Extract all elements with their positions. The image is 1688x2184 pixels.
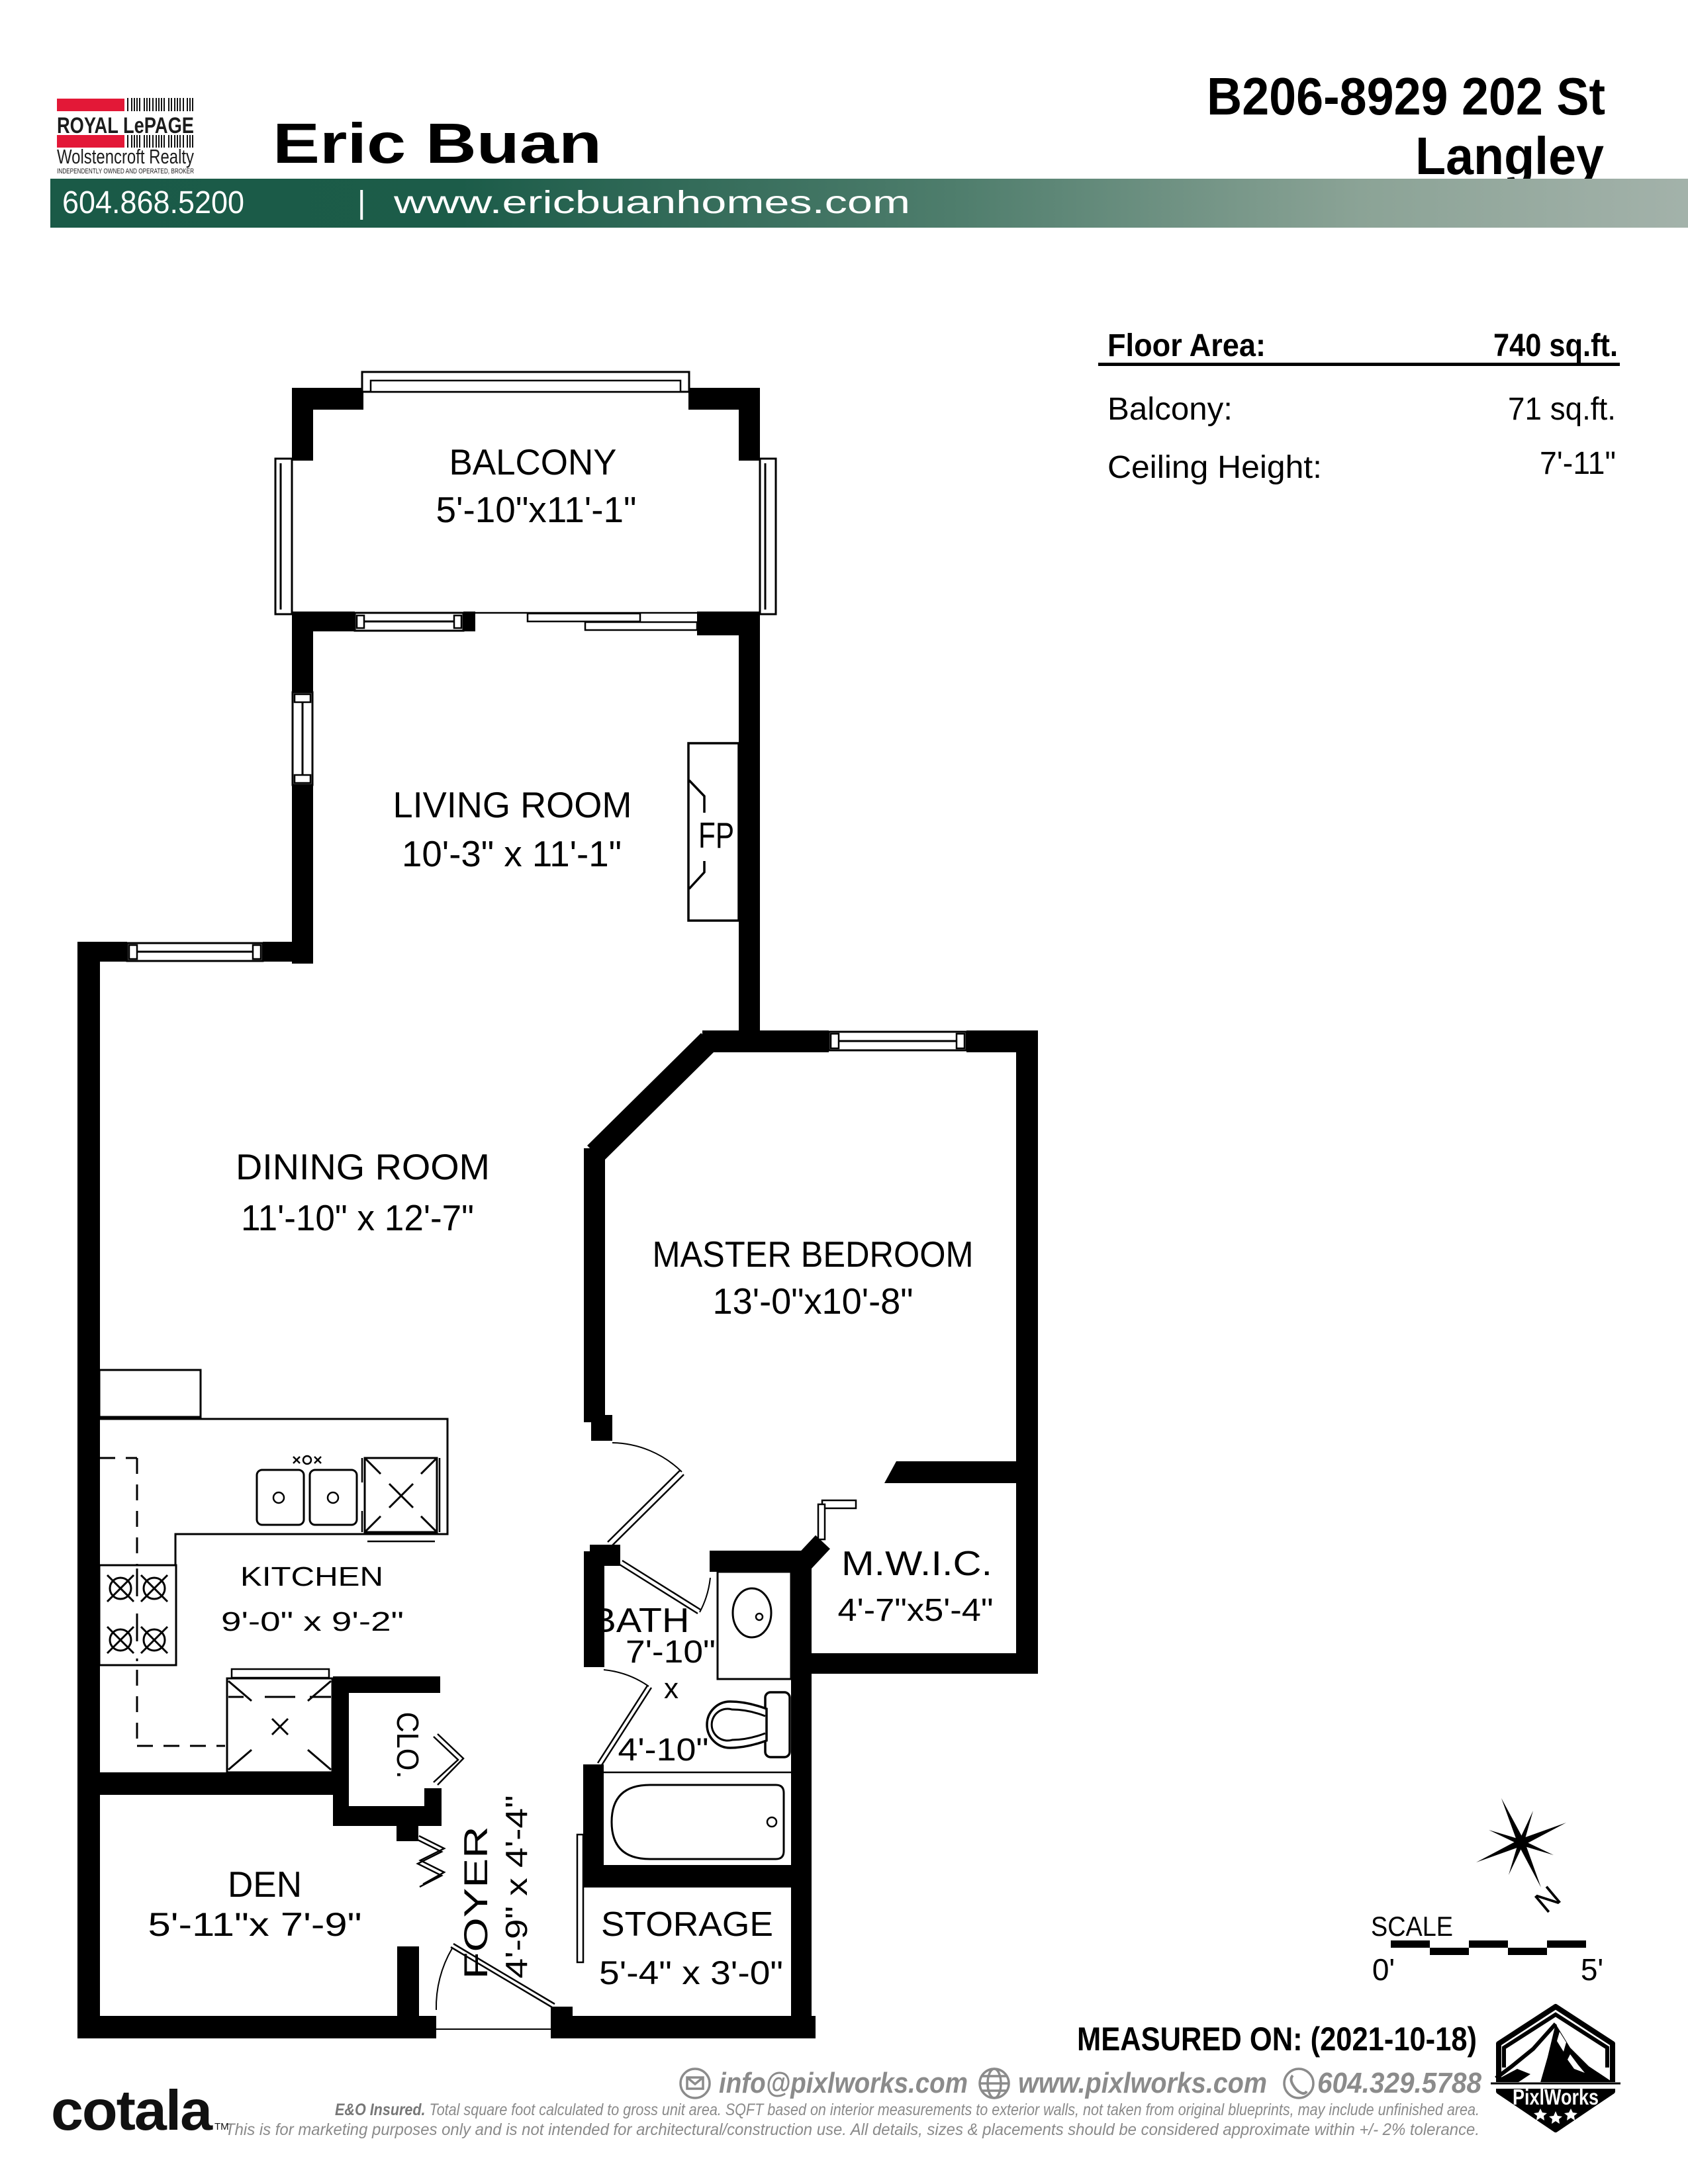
svg-text:FP: FP xyxy=(698,815,734,856)
svg-text:740 sq.ft.: 740 sq.ft. xyxy=(1493,328,1618,363)
svg-text:11'-10" x 12'-7": 11'-10" x 12'-7" xyxy=(241,1197,474,1238)
svg-text:SCALE: SCALE xyxy=(1371,1911,1453,1942)
svg-text:4'-10": 4'-10" xyxy=(618,1733,709,1768)
svg-text:5': 5' xyxy=(1581,1952,1603,1987)
svg-text:PixlWorks: PixlWorks xyxy=(1513,2085,1599,2109)
svg-text:CLO.: CLO. xyxy=(391,1712,425,1779)
svg-text:9'-0" x 9'-2": 9'-0" x 9'-2" xyxy=(221,1606,404,1637)
svg-text:M.W.I.C.: M.W.I.C. xyxy=(841,1545,992,1583)
svg-text:STORAGE: STORAGE xyxy=(601,1905,773,1944)
svg-text:x: x xyxy=(664,1672,679,1705)
svg-text:DINING ROOM: DINING ROOM xyxy=(236,1146,490,1187)
svg-text:4'-7"x5'-4": 4'-7"x5'-4" xyxy=(838,1593,994,1628)
svg-text:MEASURED ON: (2021-10-18): MEASURED ON: (2021-10-18) xyxy=(1077,2021,1477,2058)
svg-text:ROYAL LePAGE: ROYAL LePAGE xyxy=(57,113,194,138)
svg-text:This is for marketing purposes: This is for marketing purposes only and … xyxy=(225,2120,1479,2139)
svg-text:71 sq.ft.: 71 sq.ft. xyxy=(1508,392,1616,427)
svg-text:10'-3" x 11'-1": 10'-3" x 11'-1" xyxy=(402,833,622,874)
svg-text:BALCONY: BALCONY xyxy=(449,441,617,482)
svg-text:TM: TM xyxy=(214,2121,229,2132)
svg-text:0': 0' xyxy=(1372,1952,1395,1987)
svg-text:www.pixlworks.com: www.pixlworks.com xyxy=(1018,2067,1267,2099)
svg-text:cotala: cotala xyxy=(51,2079,213,2142)
svg-text:www.ericbuanhomes.com: www.ericbuanhomes.com xyxy=(393,185,910,220)
svg-text:FOYER: FOYER xyxy=(457,1827,494,1979)
svg-text:LIVING ROOM: LIVING ROOM xyxy=(393,784,632,825)
svg-text:5'-4" x 3'-0": 5'-4" x 3'-0" xyxy=(599,1954,783,1991)
svg-text:Balcony:: Balcony: xyxy=(1107,392,1233,427)
svg-text:7'-10": 7'-10" xyxy=(626,1635,716,1670)
svg-text:DEN: DEN xyxy=(228,1864,302,1905)
svg-text:Wolstencroft Realty: Wolstencroft Realty xyxy=(57,145,194,168)
svg-text:KITCHEN: KITCHEN xyxy=(240,1561,383,1592)
svg-text:13'-0"x10'-8": 13'-0"x10'-8" xyxy=(713,1281,914,1322)
svg-text:|: | xyxy=(357,185,365,220)
svg-text:5'-10"x11'-1": 5'-10"x11'-1" xyxy=(436,489,637,530)
svg-text:604.868.5200: 604.868.5200 xyxy=(62,185,244,220)
svg-text:E&O Insured. Total square foo: E&O Insured. Total square foot calculate… xyxy=(335,2101,1479,2119)
svg-text:604.329.5788: 604.329.5788 xyxy=(1317,2067,1481,2099)
svg-text:N: N xyxy=(1528,1879,1567,1919)
svg-text:Eric Buan: Eric Buan xyxy=(273,113,602,175)
svg-text:Ceiling Height:: Ceiling Height: xyxy=(1107,450,1322,485)
svg-text:MASTER BEDROOM: MASTER BEDROOM xyxy=(653,1234,974,1275)
svg-text:B206-8929 202 St: B206-8929 202 St xyxy=(1207,67,1605,126)
svg-text:5'-11"x 7'-9": 5'-11"x 7'-9" xyxy=(148,1906,362,1943)
svg-text:INDEPENDENTLY OWNED AND OPERAT: INDEPENDENTLY OWNED AND OPERATED, BROKER xyxy=(57,167,194,175)
svg-text:info@pixlworks.com: info@pixlworks.com xyxy=(719,2067,968,2099)
svg-text:Langley: Langley xyxy=(1415,126,1604,185)
svg-text:Floor Area:: Floor Area: xyxy=(1107,328,1266,363)
svg-text:7'-11": 7'-11" xyxy=(1540,446,1616,481)
svg-text:4'-9" x 4'-4": 4'-9" x 4'-4" xyxy=(499,1796,534,1979)
